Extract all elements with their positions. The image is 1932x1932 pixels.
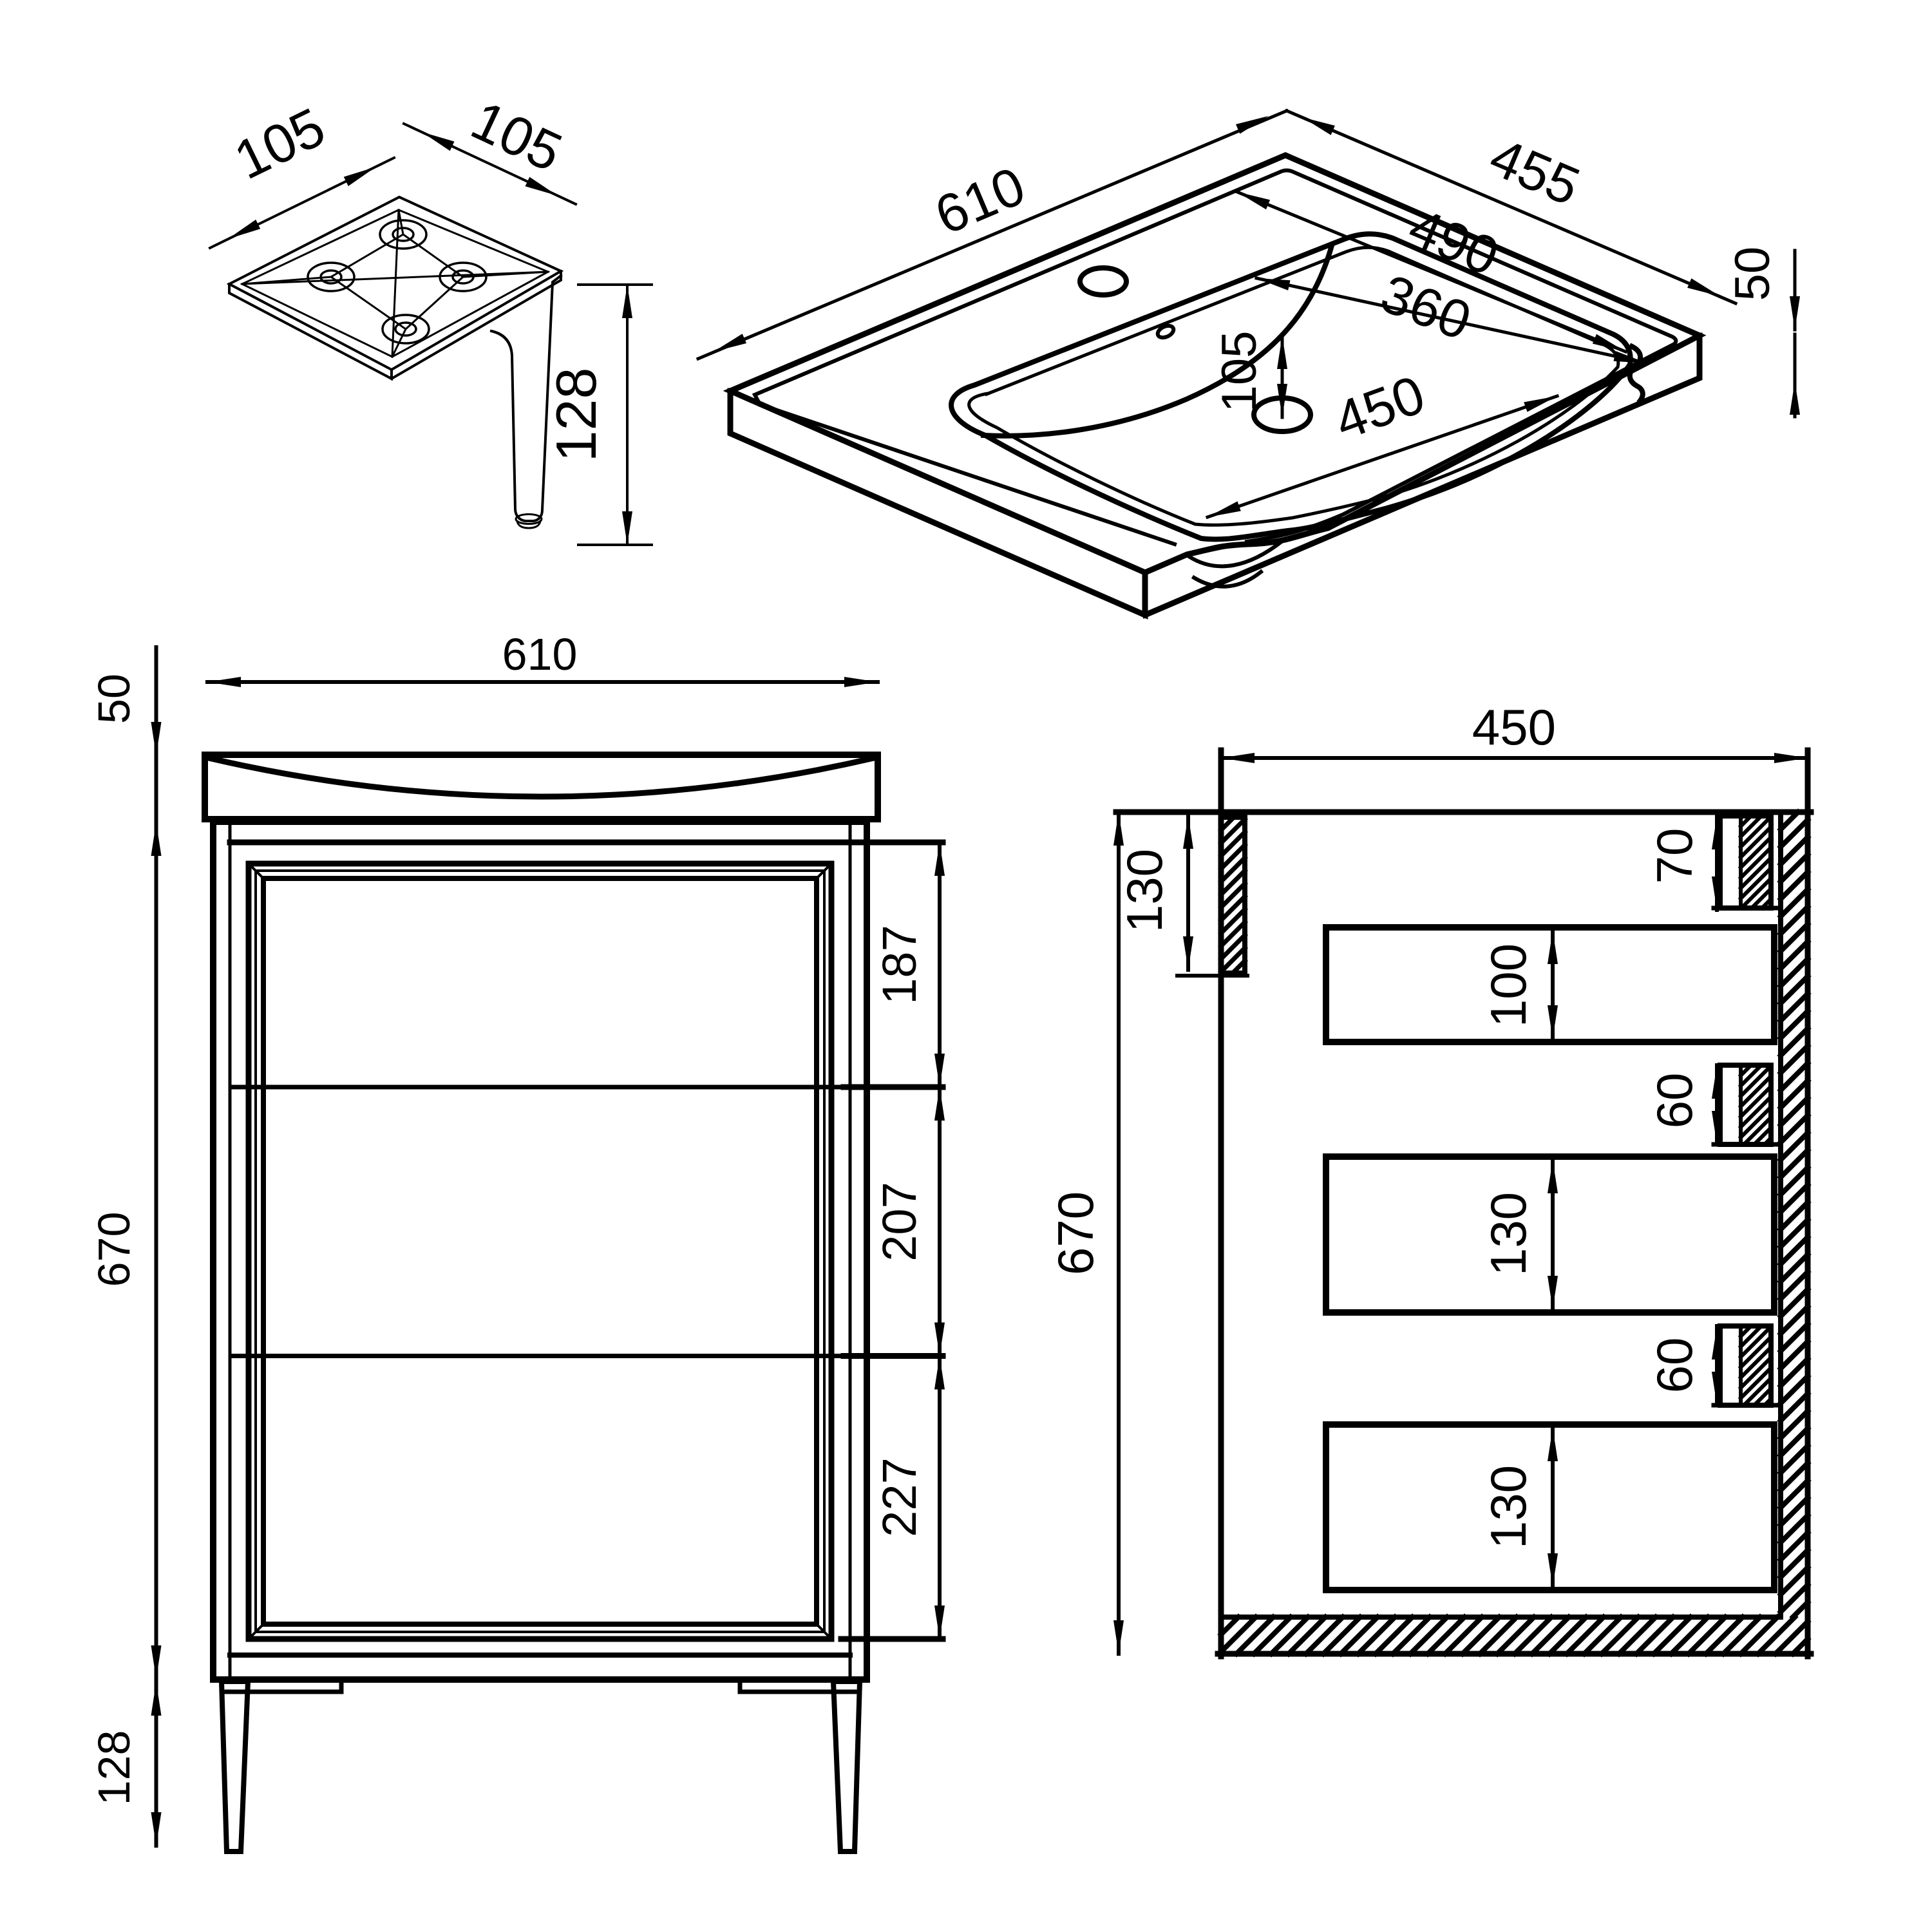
svg-text:128: 128 — [544, 368, 608, 462]
svg-text:100: 100 — [1480, 943, 1537, 1027]
svg-text:128: 128 — [89, 1730, 139, 1806]
svg-text:610: 610 — [502, 629, 578, 679]
svg-text:50: 50 — [89, 674, 139, 724]
svg-text:60: 60 — [1646, 1073, 1703, 1129]
svg-text:207: 207 — [873, 1182, 926, 1261]
svg-text:227: 227 — [873, 1457, 926, 1537]
svg-text:130: 130 — [1480, 1192, 1537, 1276]
svg-text:105: 105 — [1212, 331, 1267, 413]
svg-text:130: 130 — [1480, 1465, 1537, 1549]
svg-text:670: 670 — [89, 1212, 139, 1287]
svg-text:670: 670 — [1047, 1191, 1104, 1275]
svg-text:60: 60 — [1646, 1338, 1703, 1394]
svg-text:187: 187 — [873, 925, 926, 1004]
svg-text:70: 70 — [1646, 828, 1703, 884]
svg-text:130: 130 — [1116, 849, 1173, 933]
svg-text:450: 450 — [1472, 699, 1556, 755]
svg-text:50: 50 — [1725, 247, 1780, 301]
